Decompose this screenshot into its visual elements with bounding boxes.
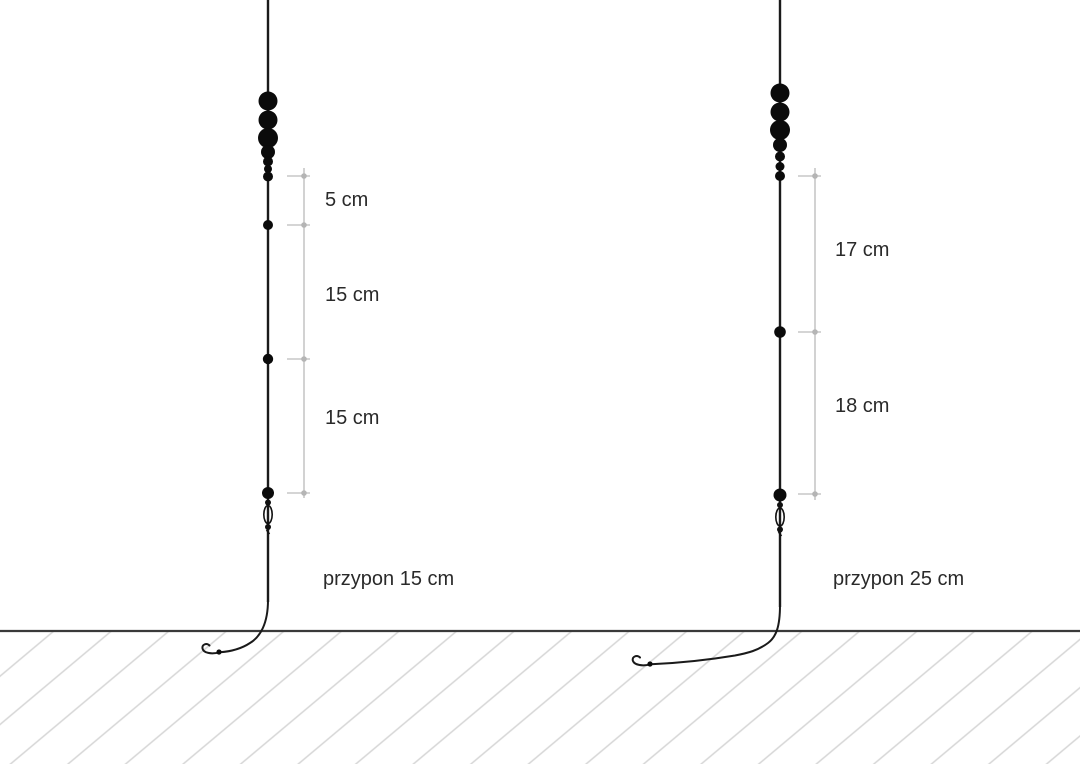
shot-weight <box>771 103 790 122</box>
shot-weight <box>771 84 790 103</box>
shot-cluster <box>258 92 278 182</box>
stop-bead <box>263 354 273 364</box>
shot-weight <box>775 171 785 181</box>
measurement-label: 5 cm <box>325 189 368 211</box>
rig-right: 17 cm 18 cm przypon 25 cm <box>633 0 964 667</box>
leader-label: przypon 25 cm <box>833 568 964 590</box>
shot-weight <box>775 152 785 162</box>
rig-left: 5 cm 15 cm 15 cm przypon 15 cm <box>202 0 454 655</box>
hook-eye <box>647 661 652 666</box>
measurement-label: 18 cm <box>835 395 889 417</box>
shot-weight <box>773 138 787 152</box>
shot-weight <box>770 120 790 140</box>
diagram-canvas: 5 cm 15 cm 15 cm przypon 15 cm <box>0 0 1080 764</box>
shot-weight <box>776 162 785 171</box>
measurement-bracket <box>287 168 310 498</box>
shot-weight <box>259 111 278 130</box>
stop-bead <box>774 489 787 502</box>
riverbed-hatch <box>0 631 1080 764</box>
measurement-label: 17 cm <box>835 239 889 261</box>
leader-label: przypon 15 cm <box>323 568 454 590</box>
measurement-label: 15 cm <box>325 407 379 429</box>
shot-weight <box>259 92 278 111</box>
shot-cluster <box>770 84 790 182</box>
shot-weight <box>263 172 273 182</box>
stop-bead <box>774 326 786 338</box>
fishing-rig-diagram: 5 cm 15 cm 15 cm przypon 15 cm <box>0 0 1080 764</box>
stop-bead <box>262 487 274 499</box>
measurement-label: 15 cm <box>325 284 379 306</box>
measurement-bracket <box>798 168 821 500</box>
hook-eye <box>216 649 221 654</box>
stop-bead <box>263 220 273 230</box>
